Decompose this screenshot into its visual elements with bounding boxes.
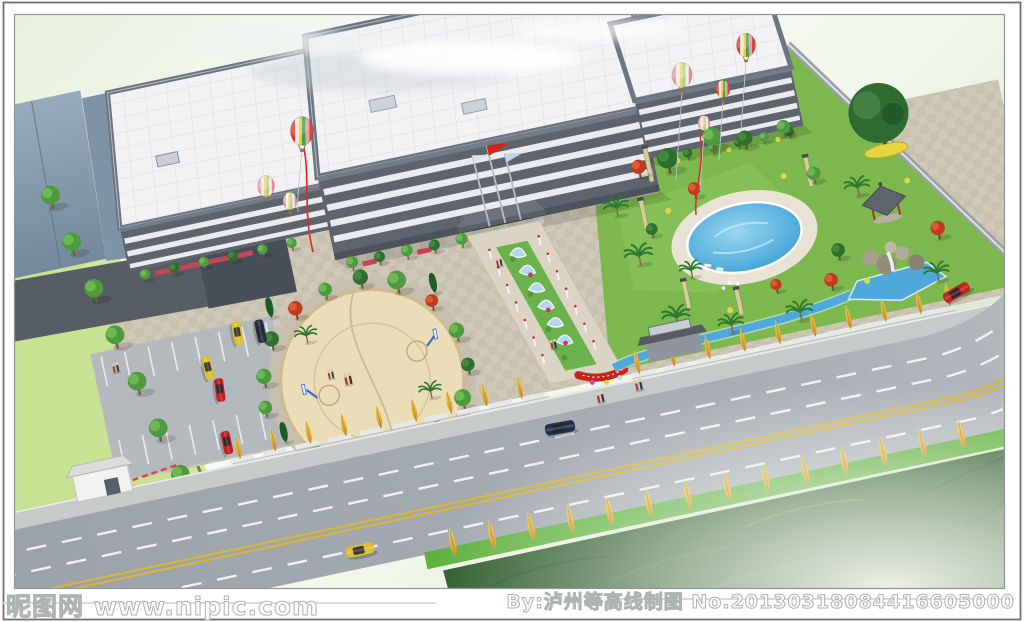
cloud xyxy=(180,29,360,55)
framed-rendering: 昵图网 www.nipic.com By:泸州等高线制图 No.20130318… xyxy=(0,0,1024,622)
scene xyxy=(0,0,1024,622)
cloud xyxy=(360,42,580,74)
watermark-site: 昵图网 www.nipic.com xyxy=(6,592,319,621)
architectural-rendering: 昵图网 www.nipic.com By:泸州等高线制图 No.20130318… xyxy=(0,0,1024,622)
cloud xyxy=(515,19,685,41)
mist-overlay xyxy=(430,330,1004,588)
watermarks: 昵图网 www.nipic.com By:泸州等高线制图 No.20130318… xyxy=(2,590,1015,621)
watermark-credit: By:泸州等高线制图 No.20130318084416605000 xyxy=(506,590,1015,613)
